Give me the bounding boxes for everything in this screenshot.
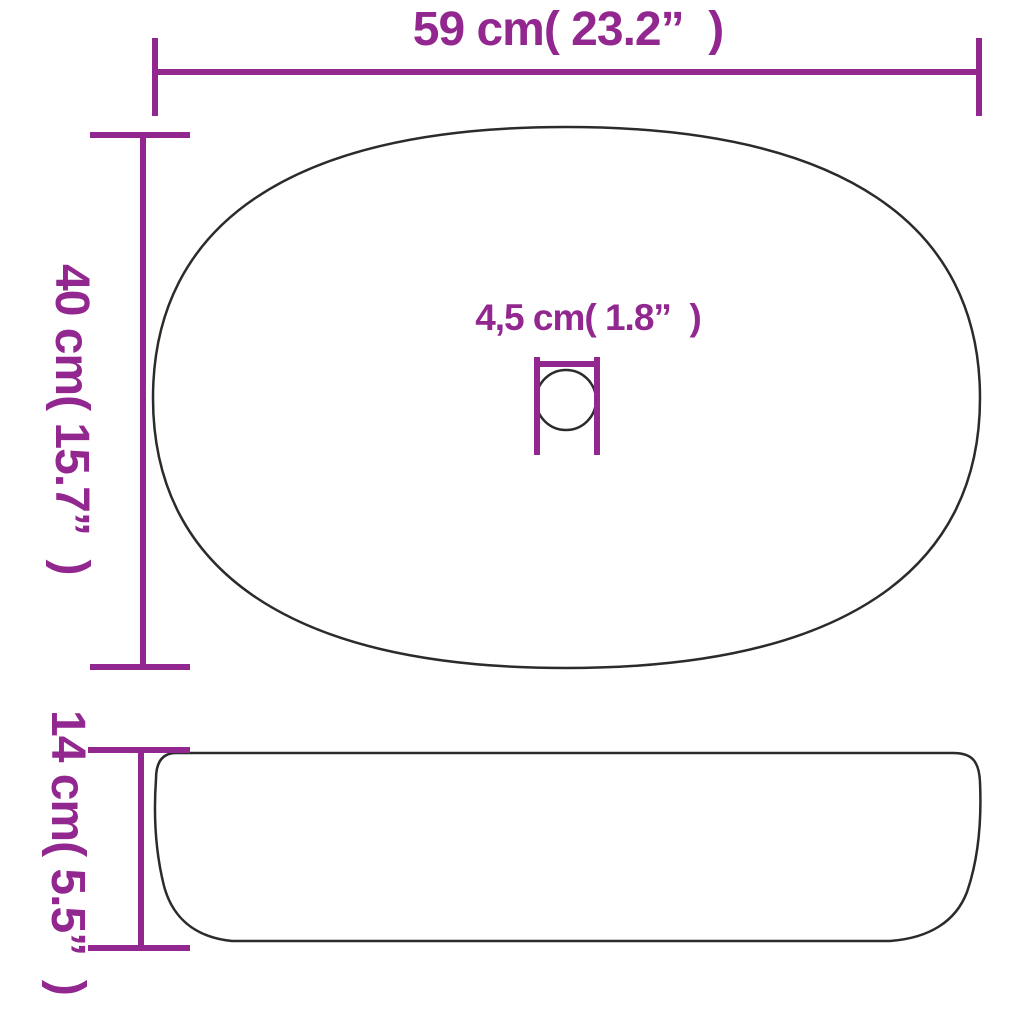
height-dim-label: 14 cm( 5.5” ) [36,710,98,1024]
diagram-canvas [0,0,1024,1024]
drain-dim-label: 4,5 cm( 1.8” ) [438,296,738,340]
drain-hole-circle [536,370,596,430]
basin-side-view-outline [155,753,980,941]
width-dim-label: 59 cm( 23.2” ) [156,2,980,58]
depth-dim-label: 40 cm( 15.7” ) [40,264,102,664]
basin-top-view-outline [153,127,980,668]
dimension-diagram: 59 cm( 23.2” ) 40 cm( 15.7” ) 4,5 cm( 1.… [0,0,1024,1024]
